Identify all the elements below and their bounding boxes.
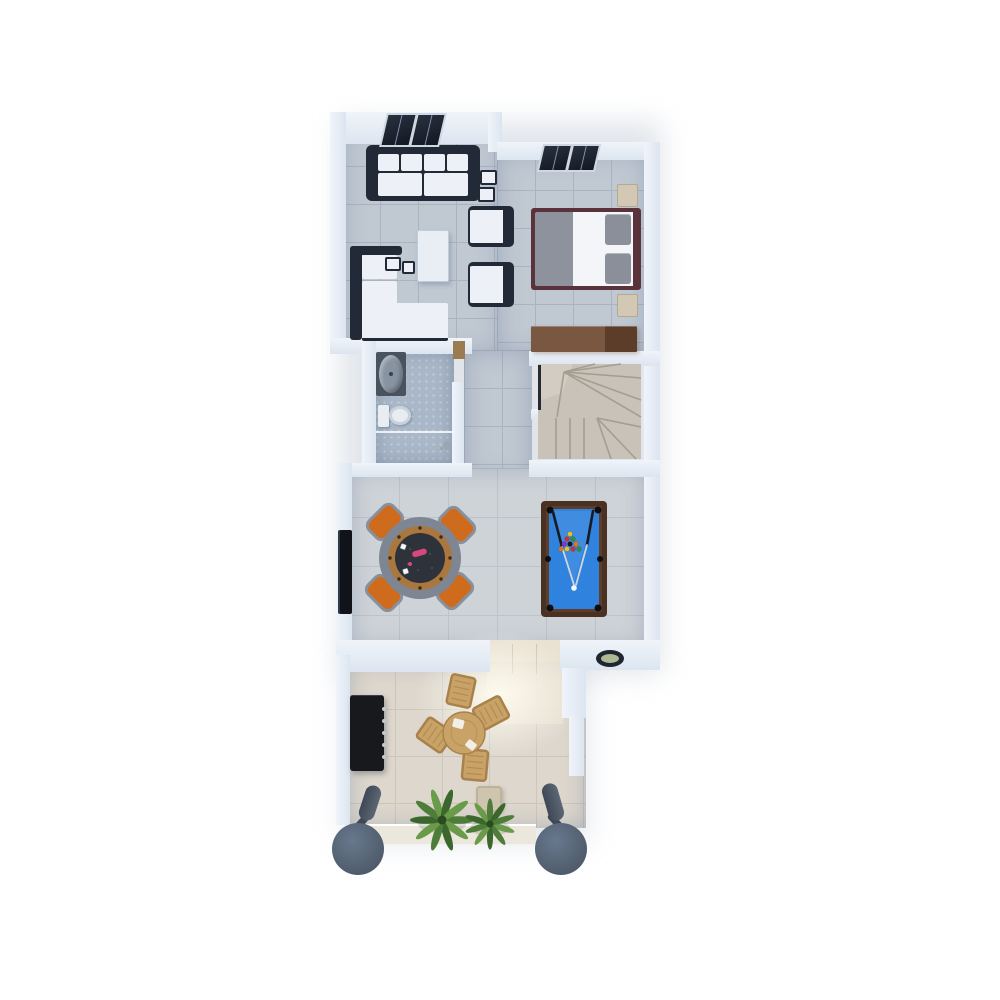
stair-rail: [538, 365, 541, 410]
grill-knobs: [382, 707, 386, 759]
sectional-back-top: [350, 246, 402, 255]
patio-chair: [446, 674, 476, 708]
side-table-cube: [478, 187, 495, 202]
armchair: [468, 206, 514, 247]
toilet-bowl: [389, 406, 411, 425]
palm-plants: [402, 770, 526, 874]
shower-partition: [376, 431, 454, 433]
coffee-table: [417, 230, 449, 282]
decorative-bowl: [596, 650, 624, 667]
poker-table: [379, 517, 461, 599]
dresser: [531, 326, 637, 352]
wall-bathroom-bottom: [336, 463, 472, 477]
skylight-pane: [539, 146, 570, 170]
toilet: [378, 405, 389, 427]
bed-pillow-zone: [603, 212, 633, 286]
tv-wall-mounted: [338, 530, 352, 614]
wall-terrace-left: [336, 655, 350, 825]
wall-bathroom-left: [362, 338, 376, 477]
cue-ball: [571, 585, 577, 591]
wall-terrace-right-upper: [562, 668, 586, 718]
bowl-contents: [601, 654, 619, 663]
floor-plan-canvas: [0, 0, 1000, 1000]
bed-sheet: [573, 212, 603, 286]
sectional-chaise: [362, 303, 448, 341]
poker-table-set: [358, 494, 484, 620]
bbq-grill: [350, 695, 384, 771]
pool-table: [541, 501, 611, 621]
shower-head: [443, 441, 452, 450]
terrace-column: [535, 823, 587, 875]
nightstand: [617, 184, 638, 207]
skylight-living-icon: [379, 113, 447, 147]
floor-hallway: [464, 350, 532, 480]
sectional-back: [350, 246, 362, 340]
terrace-column: [332, 823, 384, 875]
side-table-cube: [480, 170, 497, 185]
skylight-pane: [568, 146, 599, 170]
sofa-three-seat: [366, 145, 480, 201]
sink-drain: [389, 372, 393, 376]
staircase: [531, 351, 647, 464]
palm-plant: [410, 788, 474, 851]
wall-left-upper: [330, 112, 346, 352]
poker-logo-dot: [408, 562, 412, 566]
sofa-tray-cube: [402, 261, 415, 274]
skylight-pane: [382, 115, 415, 145]
patio-dining-set: [417, 667, 513, 785]
armchair: [468, 262, 514, 307]
skylight-pane: [411, 115, 444, 145]
double-bed: [531, 208, 641, 290]
nightstand: [617, 294, 638, 317]
pillow: [605, 253, 631, 284]
bed-blanket: [535, 212, 573, 286]
sofa-tray-cube: [385, 257, 401, 271]
bathroom-door: [453, 341, 465, 359]
sofa-back-cushions: [378, 154, 468, 171]
patio-table: [443, 712, 485, 754]
skylight-bedroom-icon: [537, 144, 601, 172]
pillow: [605, 214, 631, 245]
sofa-seat-cushions: [378, 173, 468, 196]
wall-terrace-right-lower: [569, 716, 584, 776]
